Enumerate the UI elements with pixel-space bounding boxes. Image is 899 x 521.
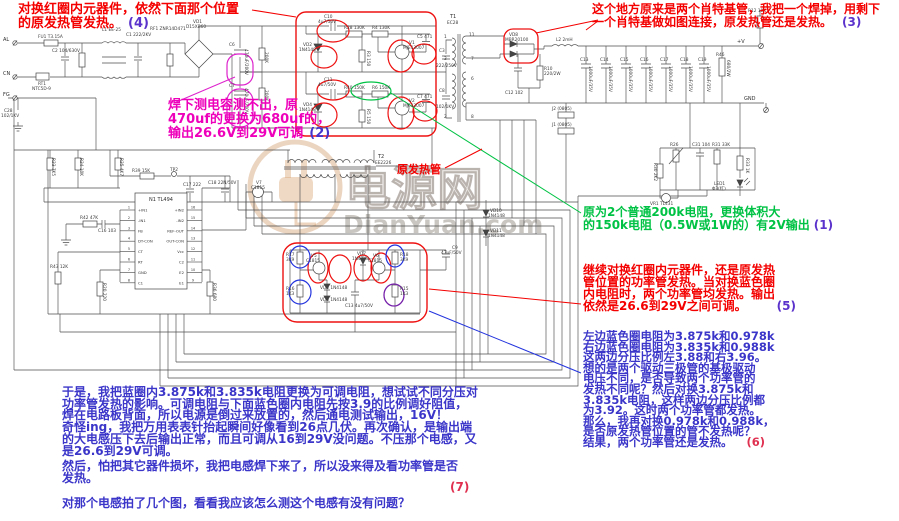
component-label: 4u7/50V bbox=[318, 82, 336, 88]
annotation-question: 对那个电感拍了几个图，看看我应该怎么测这个电感有没有问题？ bbox=[62, 497, 410, 509]
component-label: C6 bbox=[229, 42, 235, 48]
annotation-number: (2) bbox=[303, 126, 330, 141]
component-label: 1000uF/35V bbox=[607, 66, 613, 92]
pointer-line-annotation-3 bbox=[536, 20, 598, 33]
component-label: 1N4148 bbox=[488, 213, 505, 219]
component-label: EE2226 bbox=[375, 160, 392, 166]
component-label: C17 222 bbox=[183, 182, 201, 188]
component-label: C8 bbox=[439, 88, 445, 94]
component-label: R46 bbox=[716, 52, 725, 58]
annotation-4: 对换红圈内元器件，依然下面那个位置的原发热管发热。(4) bbox=[18, 3, 239, 30]
component-label: R23 7K5 bbox=[50, 158, 56, 176]
annotation-6: 左边蓝色圈电阻为3.875k和0.978k右边蓝色圈电阻为3.835k和0.98… bbox=[583, 331, 775, 448]
ic-name: N1 TL494 bbox=[149, 197, 173, 203]
component-label: CN bbox=[3, 71, 10, 77]
varistor-symbol bbox=[167, 54, 173, 66]
annotation-5: 继续对换红圈内元器件，还是原发热管位置的功率管发热。当对换蓝色圈内电阻时，两个功… bbox=[583, 264, 796, 312]
component-label: C13 4u7/50V bbox=[345, 303, 373, 309]
component-label: C14 bbox=[600, 57, 609, 63]
annotation-7-number: (7) bbox=[450, 481, 469, 493]
component-label: R40 150K bbox=[344, 85, 365, 91]
component-label: R25 4K7 bbox=[118, 158, 124, 176]
schottky-diode-symbol bbox=[510, 41, 517, 57]
component-label: 220/2W bbox=[544, 71, 561, 77]
ic-pin-number: 8 bbox=[128, 278, 130, 282]
ic-pin-label: DT-CON bbox=[138, 239, 153, 244]
component-label: FG bbox=[3, 92, 10, 98]
pointer-line-annotation-5 bbox=[429, 289, 581, 304]
ic-pin-label: -IN1 bbox=[138, 218, 146, 223]
component-label: 102/1KV bbox=[436, 104, 454, 110]
component-label: C5 471 bbox=[417, 34, 433, 40]
annotation-line: 的150k电阻（0.5W或1W的）有2V输出(1) bbox=[583, 219, 833, 232]
component-label: C16 103 bbox=[98, 228, 116, 234]
bridge-rectifier-symbol bbox=[185, 40, 213, 68]
component-label: 1000uF/35V bbox=[687, 66, 693, 92]
component-label: C31 104 bbox=[692, 142, 710, 148]
ic-pin-label: CT bbox=[138, 249, 144, 254]
annotation-number: (5) bbox=[747, 299, 796, 313]
component-label: 2 bbox=[444, 114, 447, 120]
resistor-symbol bbox=[537, 66, 543, 80]
annotation-then: 然后，怕把其它器件损坏，我把电感焊下来了，所以没来得及看功率管是否发热。 bbox=[62, 461, 458, 484]
component-label: C7 bbox=[229, 83, 235, 89]
component-label: R24 10K bbox=[78, 158, 84, 176]
component-label: 1000uF/35V bbox=[705, 66, 711, 92]
component-label: C1815 bbox=[251, 185, 265, 191]
component-label: R30 2K2 bbox=[652, 163, 658, 181]
annotation-line: 470uf的更换为680uf的， bbox=[168, 113, 330, 127]
annotation-2: 焊下测电容测不出，原470uf的更换为680uf的，输出26.6V到29V可调(… bbox=[168, 99, 330, 141]
resistor-symbol bbox=[719, 58, 725, 76]
watermark-en: DianYuan.com bbox=[343, 210, 543, 239]
resistor-symbol bbox=[737, 156, 743, 170]
capacitor-symbol bbox=[696, 153, 704, 156]
component-label: 1N4148 bbox=[299, 47, 316, 53]
component-label: MBR20100 bbox=[505, 37, 529, 43]
ic-pin-label: REF-OUT bbox=[167, 228, 184, 233]
annotation-line: 然后，怕把其它器件损坏，我把电感焊下来了，所以没来得及看功率管是否 bbox=[62, 461, 458, 473]
component-label: 6 bbox=[471, 76, 474, 82]
annotation-line: 焊下测电容测不出，原 bbox=[168, 99, 330, 113]
transformer-winding-symbol bbox=[452, 36, 466, 109]
component-label: 470uF/200V bbox=[243, 49, 249, 75]
resistor-symbol bbox=[392, 252, 398, 264]
ground-symbol bbox=[13, 126, 71, 245]
component-label: 1N4148 bbox=[488, 233, 505, 239]
component-label: C1815 bbox=[368, 258, 382, 264]
component-label: 1N4148 bbox=[352, 256, 369, 262]
component-label: C18 bbox=[680, 57, 689, 63]
annotation-number: (1) bbox=[810, 218, 833, 232]
ic-pin-label: -IN2 bbox=[176, 218, 184, 223]
annotation-number: (6) bbox=[733, 435, 766, 449]
ic-pin-number: 12 bbox=[191, 247, 195, 251]
component-label: T2 bbox=[377, 154, 384, 160]
component-label: C17 bbox=[660, 57, 669, 63]
led-symbol bbox=[737, 180, 743, 186]
ic-pin-label: GND bbox=[138, 270, 147, 275]
annotation-line: 的原发热管发热。(4) bbox=[18, 17, 239, 31]
component-label: VD5 1N4148 bbox=[320, 285, 347, 291]
ic-pin-label: Vcc bbox=[177, 249, 184, 254]
component-label: 3K9 bbox=[286, 257, 295, 263]
annotation-line: 依然是26.6到29V之间可调。(5) bbox=[583, 300, 796, 312]
ic-pin-number: 5 bbox=[128, 247, 130, 251]
component-label: 1000uF/35V bbox=[587, 66, 593, 92]
annotation-line: 原发热管 bbox=[397, 164, 441, 175]
component-label: 3 bbox=[444, 56, 447, 62]
annotation-line: 对换红圈内元器件，依然下面那个位置 bbox=[18, 3, 239, 17]
component-label: 1000uF/35V bbox=[647, 66, 653, 92]
ic-pin-number: 6 bbox=[128, 258, 130, 262]
ic-pin-number: 3 bbox=[128, 226, 130, 230]
component-label: R4 130K bbox=[372, 25, 390, 31]
component-label: 8 bbox=[471, 114, 474, 120]
jumper-symbol bbox=[558, 128, 574, 134]
annotation-number: (3) bbox=[832, 15, 861, 29]
ic-pin-number: 11 bbox=[191, 258, 195, 262]
annotation-line: 一个肖特基做如图连接，原发热管还是发热。(3) bbox=[592, 16, 880, 29]
plug-icon bbox=[279, 177, 313, 202]
component-label: MJE13007 bbox=[403, 45, 425, 51]
resistor-symbol bbox=[83, 221, 97, 227]
plug-cord bbox=[296, 202, 316, 224]
component-label: 1K3 bbox=[400, 291, 409, 297]
ic-pin-label: FB bbox=[138, 228, 143, 233]
fuse-symbol bbox=[44, 40, 58, 46]
component-label: 47uF/50V bbox=[441, 250, 462, 256]
component-label: C18 22N/50V bbox=[208, 180, 236, 186]
component-label: R43 12K bbox=[50, 264, 68, 270]
component-label: 7 bbox=[471, 56, 474, 62]
component-label: Φ3(红) bbox=[712, 185, 726, 192]
resistor-symbol bbox=[297, 285, 303, 297]
terminal-symbols bbox=[13, 41, 769, 113]
ic-pin-label: E2 bbox=[179, 270, 184, 275]
annotation-line: 对那个电感拍了几个图，看看我应该怎么测这个电感有没有问题？ bbox=[62, 497, 410, 509]
choke-coil-symbol bbox=[102, 42, 126, 79]
component-label: 11 bbox=[469, 32, 475, 38]
resistor-symbol bbox=[372, 91, 388, 97]
component-label: EC28 bbox=[447, 20, 458, 26]
resistor-symbol bbox=[359, 50, 365, 62]
thermistor-symbol bbox=[36, 73, 49, 80]
ic-pin-label: C1 bbox=[138, 280, 144, 285]
component-label: J1 (0805) bbox=[551, 122, 572, 128]
resistor-symbol bbox=[79, 53, 85, 67]
component-label: R42 47K bbox=[80, 215, 98, 221]
component-label: GND bbox=[744, 96, 756, 102]
component-symbols bbox=[13, 16, 769, 302]
annotation-story: 于是，我把蓝圈内3.875k和3.835k电阻更换为可调电阻，想试试不同分压对功… bbox=[62, 387, 478, 457]
component-label: L2 2mH bbox=[556, 37, 573, 43]
annotation-1: 原为2个普通200k电阻，更换体积大的150k电阻（0.5W或1W的）有2V输出… bbox=[583, 206, 833, 231]
component-label: 1000uF/35V bbox=[667, 66, 673, 92]
component-label: J2 (0805) bbox=[551, 106, 572, 112]
component-label: T1 bbox=[449, 14, 456, 20]
component-label: C7 471 bbox=[417, 94, 433, 100]
component-label: VD6 1N4148 bbox=[320, 297, 347, 303]
ic-pin-number: 14 bbox=[191, 226, 195, 230]
component-label: FU1 T3.15A bbox=[38, 34, 63, 40]
ic-pin-label: C2 bbox=[179, 260, 185, 265]
ic-pin-label: E1 bbox=[179, 280, 184, 285]
component-label: R26 bbox=[670, 142, 679, 148]
component-label: C13 bbox=[580, 57, 589, 63]
annotation-line: 发热。 bbox=[62, 473, 458, 485]
component-label: 222/250V bbox=[436, 63, 457, 69]
ic-pin-number: 10 bbox=[191, 268, 195, 272]
pointer-line-annotation-4 bbox=[252, 10, 296, 17]
component-label: MJE13007 bbox=[403, 103, 425, 109]
capacitor-symbol bbox=[61, 57, 142, 60]
ic-pin-number: 1 bbox=[128, 206, 130, 210]
component-label: 1 bbox=[444, 34, 447, 40]
component-label: 1000uF/35V bbox=[627, 66, 633, 92]
ic-pin-label: +IN1 bbox=[138, 208, 148, 213]
component-label: C1 222/2KV bbox=[126, 32, 151, 38]
resistor-symbol bbox=[55, 272, 61, 284]
component-label: NTC5D-9 bbox=[32, 86, 51, 92]
ic-pin-number: 9 bbox=[192, 278, 194, 282]
ic-pin-number: 4 bbox=[128, 237, 130, 241]
component-label: R3 150 bbox=[365, 51, 371, 67]
ic-pin-number: 7 bbox=[128, 268, 130, 272]
annotation-hot-tube: 原发热管 bbox=[397, 164, 441, 175]
resistor-symbol bbox=[372, 31, 388, 37]
component-label: C1815 bbox=[306, 258, 320, 264]
ic-pin-number: 2 bbox=[128, 216, 130, 220]
output-inductor-symbol bbox=[552, 45, 578, 46]
component-label: C19 bbox=[698, 57, 707, 63]
ic-pin-number: 13 bbox=[191, 237, 195, 241]
component-label: 3K9 bbox=[400, 257, 409, 263]
resistor-symbol bbox=[714, 150, 720, 164]
ic-pin-number: 15 bbox=[191, 216, 195, 220]
annotation-line: 输出26.6V到29V可调(2) bbox=[168, 127, 330, 141]
component-label: R6 150K bbox=[372, 85, 390, 91]
resistor-symbol bbox=[297, 252, 303, 264]
annotation-line: 原为2个普通200k电阻，更换体积大 bbox=[583, 206, 833, 219]
component-label: 680/2W bbox=[725, 60, 731, 77]
pointer-line-annotation-6 bbox=[429, 311, 581, 373]
component-label: C3 bbox=[439, 48, 445, 54]
ic-pin-label: OUT-CON bbox=[166, 239, 184, 244]
component-label: R28 130K bbox=[344, 25, 365, 31]
annotation-number: (4) bbox=[122, 16, 149, 31]
component-label: AL bbox=[3, 37, 9, 43]
jumper-symbol bbox=[558, 112, 574, 118]
component-label: +V bbox=[737, 39, 745, 45]
component-label: R39 15K bbox=[132, 168, 150, 174]
component-label: 200K bbox=[263, 52, 269, 63]
ic-pin-number: 16 bbox=[191, 206, 195, 210]
component-label: C2 104/630V bbox=[52, 48, 80, 54]
component-label: 102/1KV bbox=[1, 113, 19, 119]
annotation-line: 结果，两个功率管还是发热。(6) bbox=[583, 437, 775, 448]
resistor-symbol bbox=[392, 285, 398, 297]
component-label: C16 bbox=[640, 57, 649, 63]
component-label: C15 bbox=[620, 57, 629, 63]
component-label: C12 102 bbox=[505, 90, 523, 96]
component-label: R36 680 bbox=[211, 283, 217, 301]
component-label: R20 220 bbox=[101, 283, 107, 301]
component-label: R31 33K bbox=[712, 142, 730, 148]
component-label: 4u7/50V bbox=[318, 19, 336, 25]
annotation-line: 是26.6到29V可调。 bbox=[62, 446, 478, 458]
ic-pin-label: RT bbox=[138, 260, 143, 265]
watermark-logo: 电源网 DianYuan.com bbox=[250, 142, 543, 239]
ic-pin-label: +IN2 bbox=[174, 208, 184, 213]
annotation-3: 这个地方原来是两个肖特基管，我把一个焊掉，用剩下一个肖特基做如图连接，原发热管还… bbox=[592, 3, 880, 29]
component-label: 1K3 bbox=[286, 291, 295, 297]
annotation-line: (7) bbox=[450, 481, 469, 493]
resistor-symbol bbox=[359, 110, 365, 122]
component-label: R5 150 bbox=[365, 109, 371, 125]
component-label: TP2 bbox=[169, 167, 178, 173]
screenshot-root: 电源网 DianYuan.com bbox=[0, 0, 899, 521]
component-label: R33 1K bbox=[744, 158, 750, 174]
